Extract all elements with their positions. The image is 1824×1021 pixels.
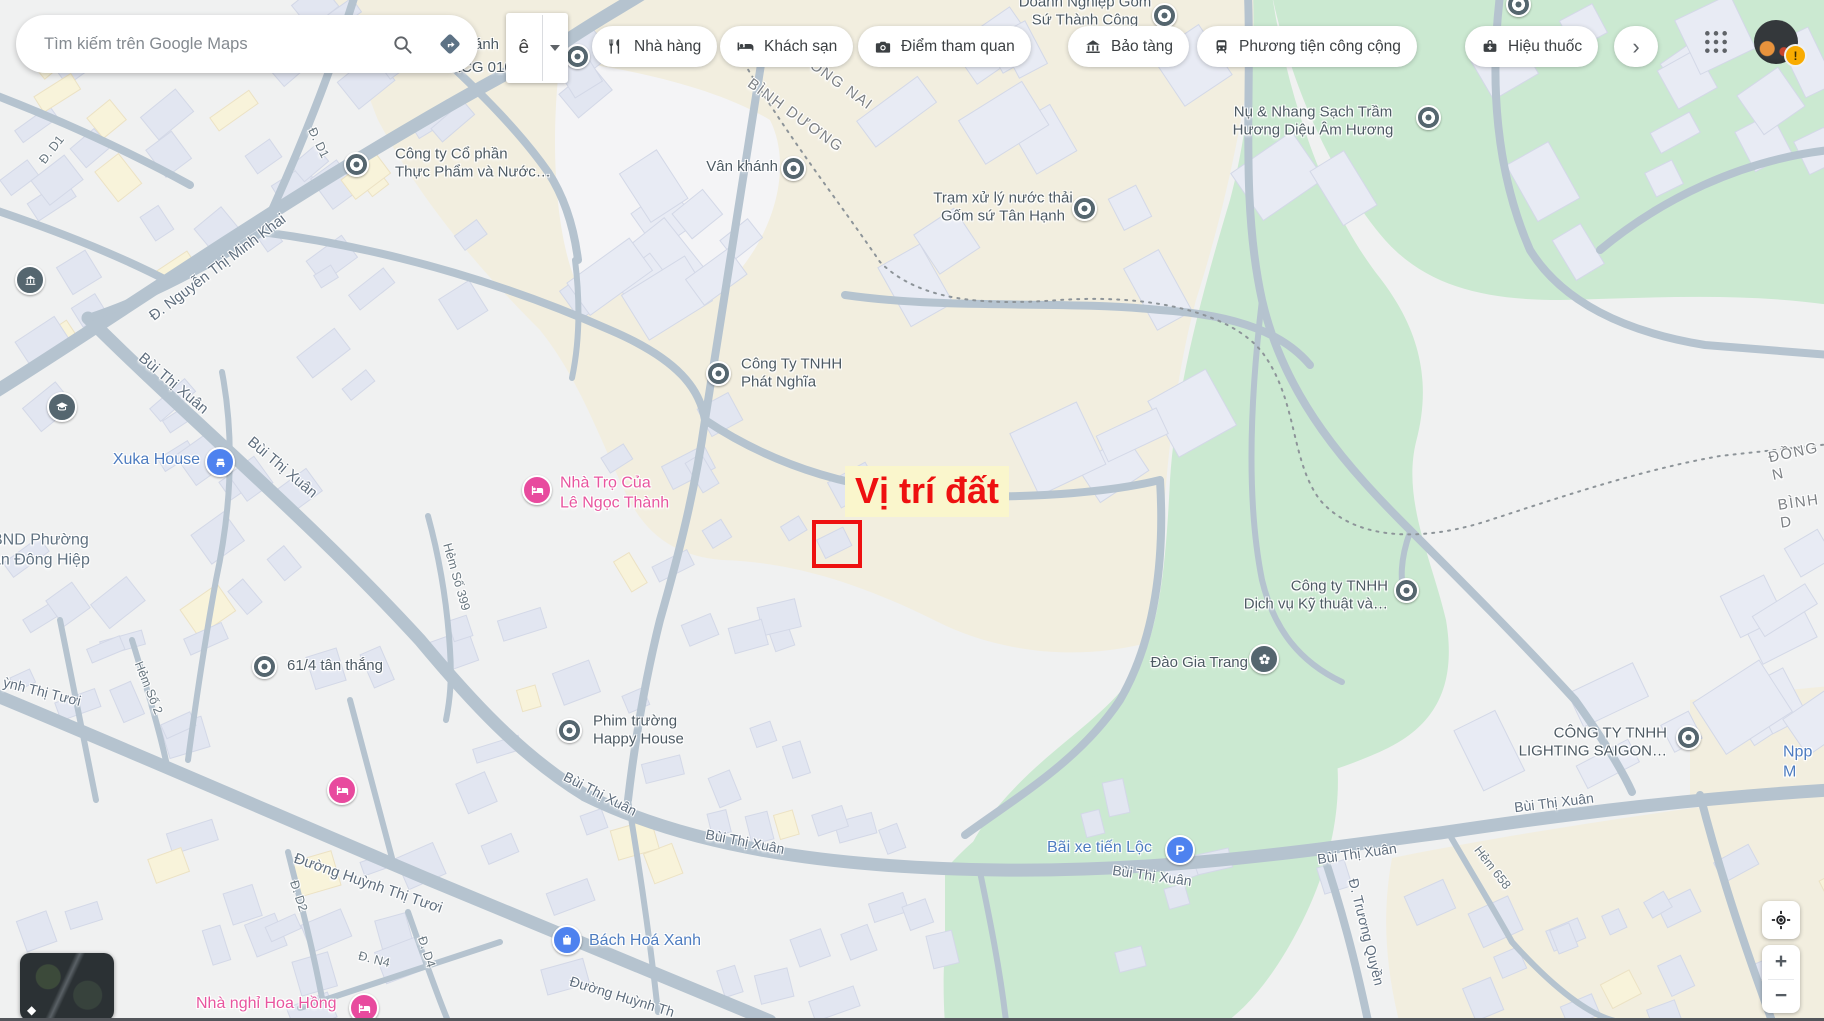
my-location-button[interactable] — [1762, 901, 1800, 939]
chip-attractions[interactable]: Điểm tham quan — [858, 26, 1031, 67]
google-apps-grid-icon[interactable] — [1703, 29, 1729, 55]
lodging-marker[interactable] — [349, 993, 379, 1021]
ime-mode-button[interactable]: ê — [506, 15, 543, 81]
chip-label: Phương tiện công cộng — [1239, 38, 1401, 56]
school-marker[interactable] — [47, 392, 77, 422]
poi-label[interactable]: Phim trường Happy House — [593, 713, 684, 750]
chevron-down-icon — [550, 45, 560, 51]
chip-label: Nhà hàng — [634, 38, 701, 56]
poi-marker[interactable] — [1676, 725, 1701, 750]
restaurant-icon — [608, 38, 625, 55]
province-label: BÌNH D — [1777, 491, 1824, 534]
parking-marker[interactable]: P — [1165, 835, 1195, 865]
poi-marker[interactable] — [565, 44, 590, 69]
poi-label: BND Phường an Đông Hiệp — [0, 530, 90, 569]
search-input[interactable] — [42, 34, 378, 55]
chip-pharmacies[interactable]: Hiệu thuốc — [1465, 26, 1598, 67]
poi-label[interactable]: Vân khánh — [706, 158, 778, 176]
poi-label[interactable]: Nhà Trọ Của Lê Ngọc Thành — [560, 473, 669, 512]
chip-label: Hiệu thuốc — [1508, 38, 1582, 56]
camera-icon — [874, 38, 892, 56]
hotel-icon — [736, 37, 755, 56]
poi-label[interactable]: Công Ty TNHH Phát Nghĩa — [741, 356, 842, 393]
chip-label: Điểm tham quan — [901, 38, 1015, 56]
poi-marker[interactable] — [706, 361, 731, 386]
poi-label[interactable]: Bãi xe tiến Lộc — [1047, 838, 1152, 858]
poi-marker[interactable] — [781, 156, 806, 181]
zoom-control: + − — [1762, 945, 1800, 1013]
poi-label[interactable]: CÔNG TY TNHH LIGHTING SAIGON… — [1519, 725, 1667, 762]
poi-label[interactable]: Trạm xử lý nước thải Gốm sứ Tân Hạnh — [933, 190, 1072, 227]
zoom-in-button[interactable]: + — [1762, 945, 1800, 979]
satellite-layer-toggle[interactable]: ◆ — [20, 953, 114, 1021]
chip-museums[interactable]: Bảo tàng — [1068, 26, 1189, 67]
more-categories-button[interactable]: › — [1614, 26, 1658, 67]
google-maps-app: Đ. Nguyễn Thị Minh Khai Đ. D1 Đ. D1 Bùi … — [0, 0, 1824, 1021]
transit-icon — [1213, 38, 1230, 55]
poi-label[interactable]: Npp M — [1783, 742, 1824, 781]
garden-flower-marker[interactable] — [1249, 644, 1279, 674]
poi-marker[interactable] — [1072, 196, 1097, 221]
vietnamese-ime-widget[interactable]: ê — [506, 13, 568, 83]
poi-label[interactable]: Nụ & Nhang Sạch Trầm Hương Diệu Âm Hương — [1233, 104, 1394, 141]
pharmacy-icon — [1481, 38, 1499, 56]
directions-icon — [437, 31, 463, 57]
account-alert-badge: ! — [1784, 44, 1807, 67]
poi-label[interactable]: Xuka House — [113, 450, 200, 470]
car-wash-marker[interactable] — [205, 447, 235, 477]
search-icon — [391, 33, 414, 56]
poi-marker[interactable] — [1394, 578, 1419, 603]
lodging-marker[interactable] — [327, 775, 357, 805]
poi-label[interactable]: Công ty Cổ phần Thực Phẩm và Nước… — [395, 146, 551, 183]
site-annotation-label: Vị trí đất — [845, 466, 1009, 517]
museum-icon — [1084, 38, 1102, 56]
poi-marker[interactable] — [252, 654, 277, 679]
poi-label[interactable]: Đào Gia Trang — [1150, 654, 1248, 672]
lodging-marker[interactable] — [522, 475, 552, 505]
store-bag-marker[interactable] — [552, 925, 582, 955]
chip-label: Bảo tàng — [1111, 38, 1173, 56]
poi-marker[interactable] — [1152, 3, 1177, 28]
directions-button[interactable] — [426, 20, 474, 68]
chip-hotels[interactable]: Khách sạn — [720, 26, 853, 67]
ime-dropdown-button[interactable] — [543, 45, 568, 51]
poi-label[interactable]: Công ty TNHH Dịch vụ Kỹ thuật và… — [1244, 578, 1388, 615]
search-box[interactable] — [16, 15, 478, 73]
chip-transit[interactable]: Phương tiện công cộng — [1197, 26, 1417, 67]
poi-label[interactable]: 61/4 tân thắng — [287, 657, 383, 675]
poi-label[interactable]: Nhà nghỉ Hoa Hồng — [196, 994, 337, 1014]
poi-marker[interactable] — [557, 718, 582, 743]
poi-label[interactable]: Bách Hoá Xanh — [589, 931, 701, 951]
chip-label: Khách sạn — [764, 38, 837, 56]
my-location-icon — [1770, 909, 1792, 931]
chip-restaurants[interactable]: Nhà hàng — [592, 26, 717, 67]
zoom-out-button[interactable]: − — [1762, 980, 1800, 1014]
poi-marker[interactable] — [344, 152, 369, 177]
chevron-right-icon: › — [1632, 34, 1639, 60]
poi-marker[interactable] — [1416, 105, 1441, 130]
temple-marker[interactable] — [15, 265, 45, 295]
site-annotation-rectangle — [812, 520, 862, 568]
search-button[interactable] — [378, 20, 426, 68]
layers-icon: ◆ — [27, 1003, 36, 1017]
